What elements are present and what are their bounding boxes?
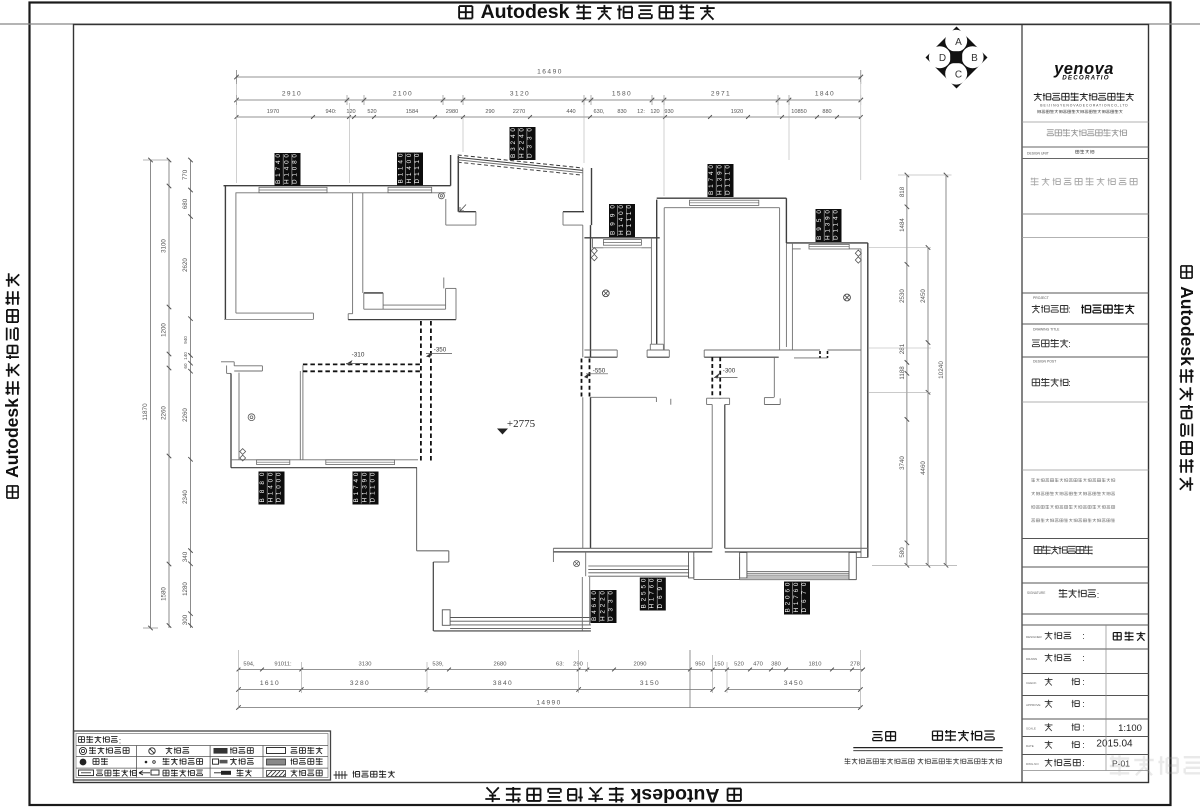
svg-text:818: 818 — [899, 186, 906, 197]
svg-text:3150: 3150 — [640, 680, 660, 687]
svg-text::: : — [1082, 758, 1085, 768]
svg-text:H1400: H1400 — [406, 153, 413, 183]
svg-text:940:: 940: — [326, 109, 337, 115]
svg-text:C: C — [955, 70, 962, 81]
svg-text:1810: 1810 — [809, 662, 822, 668]
svg-text:2450: 2450 — [920, 289, 927, 303]
svg-text:290: 290 — [485, 109, 494, 115]
svg-text:4460: 4460 — [920, 461, 927, 475]
svg-text:440: 440 — [566, 109, 575, 115]
svg-text:D1100: D1100 — [370, 472, 377, 502]
svg-text:14990: 14990 — [536, 700, 561, 707]
svg-text:60: 60 — [183, 363, 188, 369]
svg-text:D1110: D1110 — [626, 205, 633, 235]
svg-text:580: 580 — [899, 547, 906, 558]
svg-text:B: B — [971, 53, 978, 64]
svg-text:950: 950 — [695, 662, 705, 668]
svg-text:DWG.NO: DWG.NO — [1026, 762, 1039, 766]
svg-text:11870: 11870 — [142, 403, 149, 421]
svg-text:H2240: H2240 — [518, 128, 525, 158]
svg-text:H2220: H2220 — [599, 591, 606, 621]
svg-text:DECORATIO: DECORATIO — [1062, 75, 1109, 82]
svg-text:DESIGNER: DESIGNER — [1026, 635, 1043, 639]
svg-text:APPROVE: APPROVE — [1026, 703, 1041, 707]
svg-text:830: 830 — [617, 109, 626, 115]
svg-text:SCALE: SCALE — [1026, 727, 1036, 731]
svg-text:D1140: D1140 — [833, 210, 840, 240]
svg-text:3450: 3450 — [784, 680, 804, 687]
svg-text::: : — [1068, 305, 1071, 315]
svg-text:H1760: H1760 — [793, 582, 800, 612]
svg-text:PROJECT: PROJECT — [1033, 296, 1049, 300]
svg-text::: : — [1082, 740, 1085, 750]
svg-text:300: 300 — [182, 614, 189, 625]
svg-text:Autodesk: Autodesk — [1177, 286, 1197, 366]
svg-text::: : — [1068, 378, 1071, 388]
svg-text:D1110: D1110 — [414, 153, 421, 183]
svg-text:340: 340 — [182, 551, 189, 562]
svg-text:278: 278 — [850, 662, 860, 668]
svg-text:630,: 630, — [594, 109, 605, 115]
svg-text:1970: 1970 — [267, 109, 279, 115]
svg-text::: : — [1082, 653, 1085, 663]
svg-text:3120: 3120 — [510, 91, 530, 98]
svg-text::: : — [1082, 677, 1085, 687]
svg-text::: : — [1082, 699, 1085, 709]
svg-text:1580: 1580 — [612, 91, 632, 98]
svg-text:Autodesk: Autodesk — [481, 1, 570, 23]
svg-text::: : — [1082, 723, 1085, 733]
svg-text:880: 880 — [822, 109, 831, 115]
svg-text:281: 281 — [899, 343, 906, 354]
svg-text:380: 380 — [771, 662, 781, 668]
svg-text::: : — [1091, 547, 1094, 557]
svg-text:Autodesk: Autodesk — [630, 784, 719, 806]
svg-text:H1390: H1390 — [361, 472, 368, 502]
svg-text:DESIGN POST: DESIGN POST — [1033, 360, 1056, 364]
svg-text:1920: 1920 — [731, 109, 743, 115]
svg-text:1188: 1188 — [899, 366, 906, 380]
svg-text:520: 520 — [734, 662, 744, 668]
svg-text::: : — [1082, 631, 1085, 641]
svg-text:120: 120 — [346, 109, 355, 115]
svg-text:3100: 3100 — [161, 239, 168, 253]
svg-text:2015.04: 2015.04 — [1096, 739, 1133, 750]
svg-text:SIGNATURE: SIGNATURE — [1027, 591, 1045, 595]
svg-text:H1760: H1760 — [649, 578, 656, 608]
svg-text:1200: 1200 — [161, 323, 168, 337]
svg-text:B E I J I N G Y E N O V A: B E I J I N G Y E N O V A D E C O R A T … — [1040, 104, 1128, 108]
svg-text::: : — [1097, 590, 1100, 600]
svg-text:120: 120 — [650, 109, 659, 115]
svg-text:D1080: D1080 — [292, 154, 299, 184]
svg-text:2971: 2971 — [711, 91, 731, 98]
svg-text:3840: 3840 — [493, 680, 513, 687]
svg-text:150: 150 — [714, 662, 724, 668]
svg-text:CHECK: CHECK — [1026, 681, 1037, 685]
svg-text:1584: 1584 — [406, 109, 418, 115]
svg-text:DRAWING TITLE: DRAWING TITLE — [1033, 328, 1060, 332]
svg-text:2980: 2980 — [446, 109, 458, 115]
svg-text:2530: 2530 — [899, 289, 906, 303]
svg-text:930: 930 — [664, 109, 673, 115]
svg-text:Autodesk: Autodesk — [2, 398, 22, 478]
svg-text:3280: 3280 — [350, 680, 370, 687]
svg-text:2260: 2260 — [161, 406, 168, 420]
svg-text:2620: 2620 — [182, 258, 189, 272]
svg-text:-310: -310 — [352, 352, 365, 359]
svg-text:1580: 1580 — [161, 587, 168, 601]
svg-text:16490: 16490 — [537, 69, 563, 76]
svg-text:DRAWN: DRAWN — [1026, 657, 1037, 661]
svg-text:D1000: D1000 — [276, 472, 283, 502]
svg-text:H1400: H1400 — [283, 154, 290, 184]
svg-text:3130: 3130 — [359, 662, 372, 668]
svg-text:H1400: H1400 — [267, 472, 274, 502]
svg-text:2270: 2270 — [513, 109, 525, 115]
svg-text:1610: 1610 — [260, 680, 280, 687]
svg-text:290: 290 — [573, 662, 583, 668]
svg-text:A: A — [955, 37, 962, 48]
svg-text::: : — [1068, 339, 1071, 349]
svg-text:2680: 2680 — [494, 662, 507, 668]
svg-text:1484: 1484 — [899, 218, 906, 232]
svg-text:1840: 1840 — [815, 91, 835, 98]
svg-text:91011:: 91011: — [274, 662, 292, 668]
svg-text:DESIGN UNIT: DESIGN UNIT — [1027, 152, 1049, 156]
svg-text:63:: 63: — [556, 662, 564, 668]
svg-text:D: D — [939, 53, 946, 64]
svg-text:-350: -350 — [434, 347, 447, 354]
svg-text:680: 680 — [182, 198, 189, 209]
svg-text::: : — [119, 737, 121, 746]
svg-text:H1400: H1400 — [618, 205, 625, 235]
svg-text:539,: 539, — [432, 662, 444, 668]
svg-text:2340: 2340 — [182, 490, 189, 504]
svg-text:10850: 10850 — [791, 109, 807, 115]
svg-text:+2775: +2775 — [507, 418, 536, 430]
svg-text:D1110: D1110 — [725, 165, 732, 195]
svg-text:2090: 2090 — [634, 662, 647, 668]
svg-text:520: 520 — [367, 109, 376, 115]
svg-text:140: 140 — [183, 352, 188, 360]
svg-text:2910: 2910 — [282, 91, 302, 98]
svg-text:DATE: DATE — [1026, 744, 1034, 748]
svg-text:1:100: 1:100 — [1118, 723, 1142, 734]
svg-text:-300: -300 — [723, 368, 736, 375]
svg-text:H1390: H1390 — [716, 165, 723, 195]
svg-text:2260: 2260 — [182, 408, 189, 422]
svg-text:10240: 10240 — [938, 361, 945, 379]
svg-text:2100: 2100 — [393, 91, 413, 98]
svg-text:940: 940 — [183, 336, 188, 344]
svg-text:1280: 1280 — [182, 582, 189, 596]
svg-text:770: 770 — [182, 169, 189, 180]
svg-text:12:: 12: — [637, 109, 645, 115]
svg-text:H1390: H1390 — [824, 210, 831, 240]
svg-text:3740: 3740 — [899, 456, 906, 470]
svg-text:470: 470 — [753, 662, 763, 668]
svg-text:594,: 594, — [243, 662, 255, 668]
